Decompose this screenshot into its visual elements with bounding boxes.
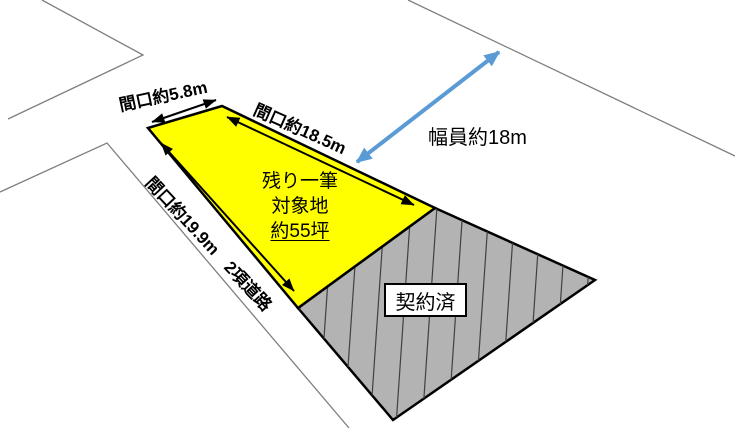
parcel-label-line1: 残り一筆 (230, 169, 370, 194)
target-parcel-label: 残り一筆 対象地 約55坪 (230, 169, 370, 244)
parcel-label-line3: 約55坪 (230, 219, 370, 244)
site-plan-diagram: 間口約5.8m 間口約18.5m 間口約19.9m2項道路 幅員約18m 残り一… (0, 0, 735, 428)
parcel-label-line2: 対象地 (230, 194, 370, 219)
contracted-label-box: 契約済 (384, 283, 467, 317)
road-width-label: 幅員約18m (428, 127, 527, 149)
contracted-label-text: 契約済 (396, 286, 456, 315)
